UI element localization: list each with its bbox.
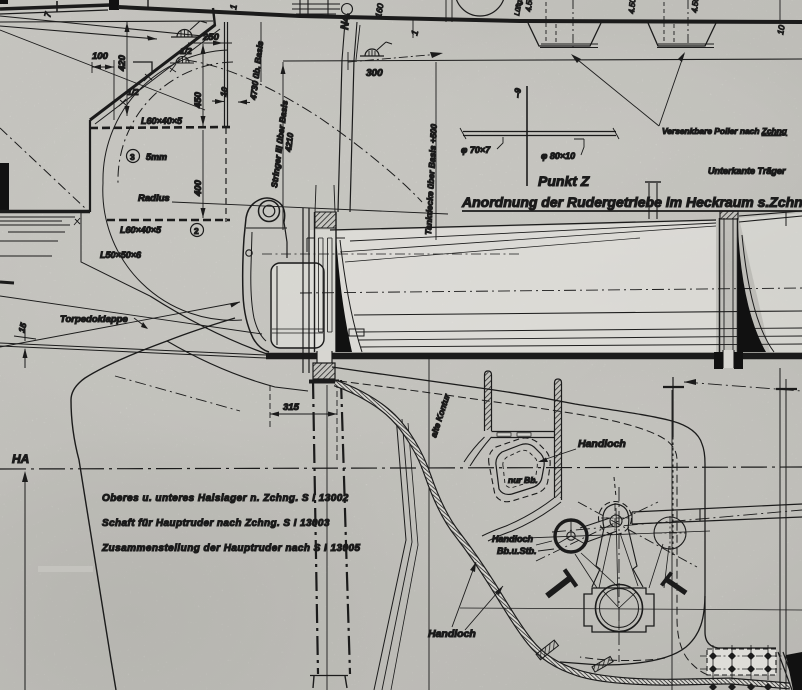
svg-text:315: 315	[283, 402, 300, 413]
svg-text:Anordnung der Rudergetriebe im: Anordnung der Rudergetriebe im Heckraum …	[461, 194, 802, 210]
svg-text:Radius: Radius	[138, 193, 170, 204]
svg-text:4.50: 4.50	[690, 0, 700, 13]
svg-text:Torpedoklappe: Torpedoklappe	[60, 314, 128, 325]
svg-text:450: 450	[193, 91, 204, 109]
svg-text:Versenkbare Poller nach Zchng: Versenkbare Poller nach Zchng	[662, 126, 787, 136]
svg-text:4.50: 4.50	[524, 0, 534, 12]
svg-text:φ 80×10: φ 80×10	[541, 151, 575, 161]
svg-text:φ 70×7: φ 70×7	[461, 145, 491, 155]
svg-text:Schaft für Hauptruder nach Zch: Schaft für Hauptruder nach Zchng. S I 13…	[102, 518, 330, 529]
svg-text:N4.: N4.	[339, 12, 352, 30]
svg-text:Handloch: Handloch	[578, 438, 626, 450]
svg-text:Handloch: Handloch	[492, 534, 534, 544]
svg-text:2: 2	[194, 226, 199, 236]
svg-text:10: 10	[218, 86, 230, 97]
svg-text:4.50: 4.50	[627, 0, 637, 14]
svg-text:5mm: 5mm	[146, 152, 167, 162]
svg-text:HA: HA	[12, 452, 29, 466]
svg-text:L60×40×5: L60×40×5	[120, 225, 162, 235]
svg-text:100: 100	[92, 51, 109, 62]
svg-text:Zusammenstellung der Hauptrude: Zusammenstellung der Hauptruder nach S I…	[101, 543, 361, 554]
svg-text:Bb.u.Stb.: Bb.u.Stb.	[497, 546, 537, 556]
svg-text:250: 250	[202, 32, 220, 43]
svg-text:3: 3	[130, 152, 135, 162]
svg-text:400: 400	[193, 179, 204, 197]
svg-text:300: 300	[366, 68, 383, 79]
svg-text:Unterkante Träger: Unterkante Träger	[708, 166, 786, 176]
svg-text:L50×50×6: L50×50×6	[100, 250, 142, 260]
svg-text:Handloch: Handloch	[428, 628, 476, 640]
svg-text:1/2: 1/2	[180, 46, 192, 56]
svg-text:420: 420	[117, 54, 128, 72]
svg-text:nur Bb.: nur Bb.	[508, 475, 538, 485]
svg-text:–9: –9	[512, 88, 523, 99]
svg-text:L60×40×5: L60×40×5	[141, 116, 183, 126]
svg-text:Punkt Z: Punkt Z	[538, 173, 590, 189]
svg-text:Oberes u. unteres Halslager n.: Oberes u. unteres Halslager n. Zchng. S …	[102, 493, 349, 504]
svg-text:10: 10	[775, 24, 787, 35]
